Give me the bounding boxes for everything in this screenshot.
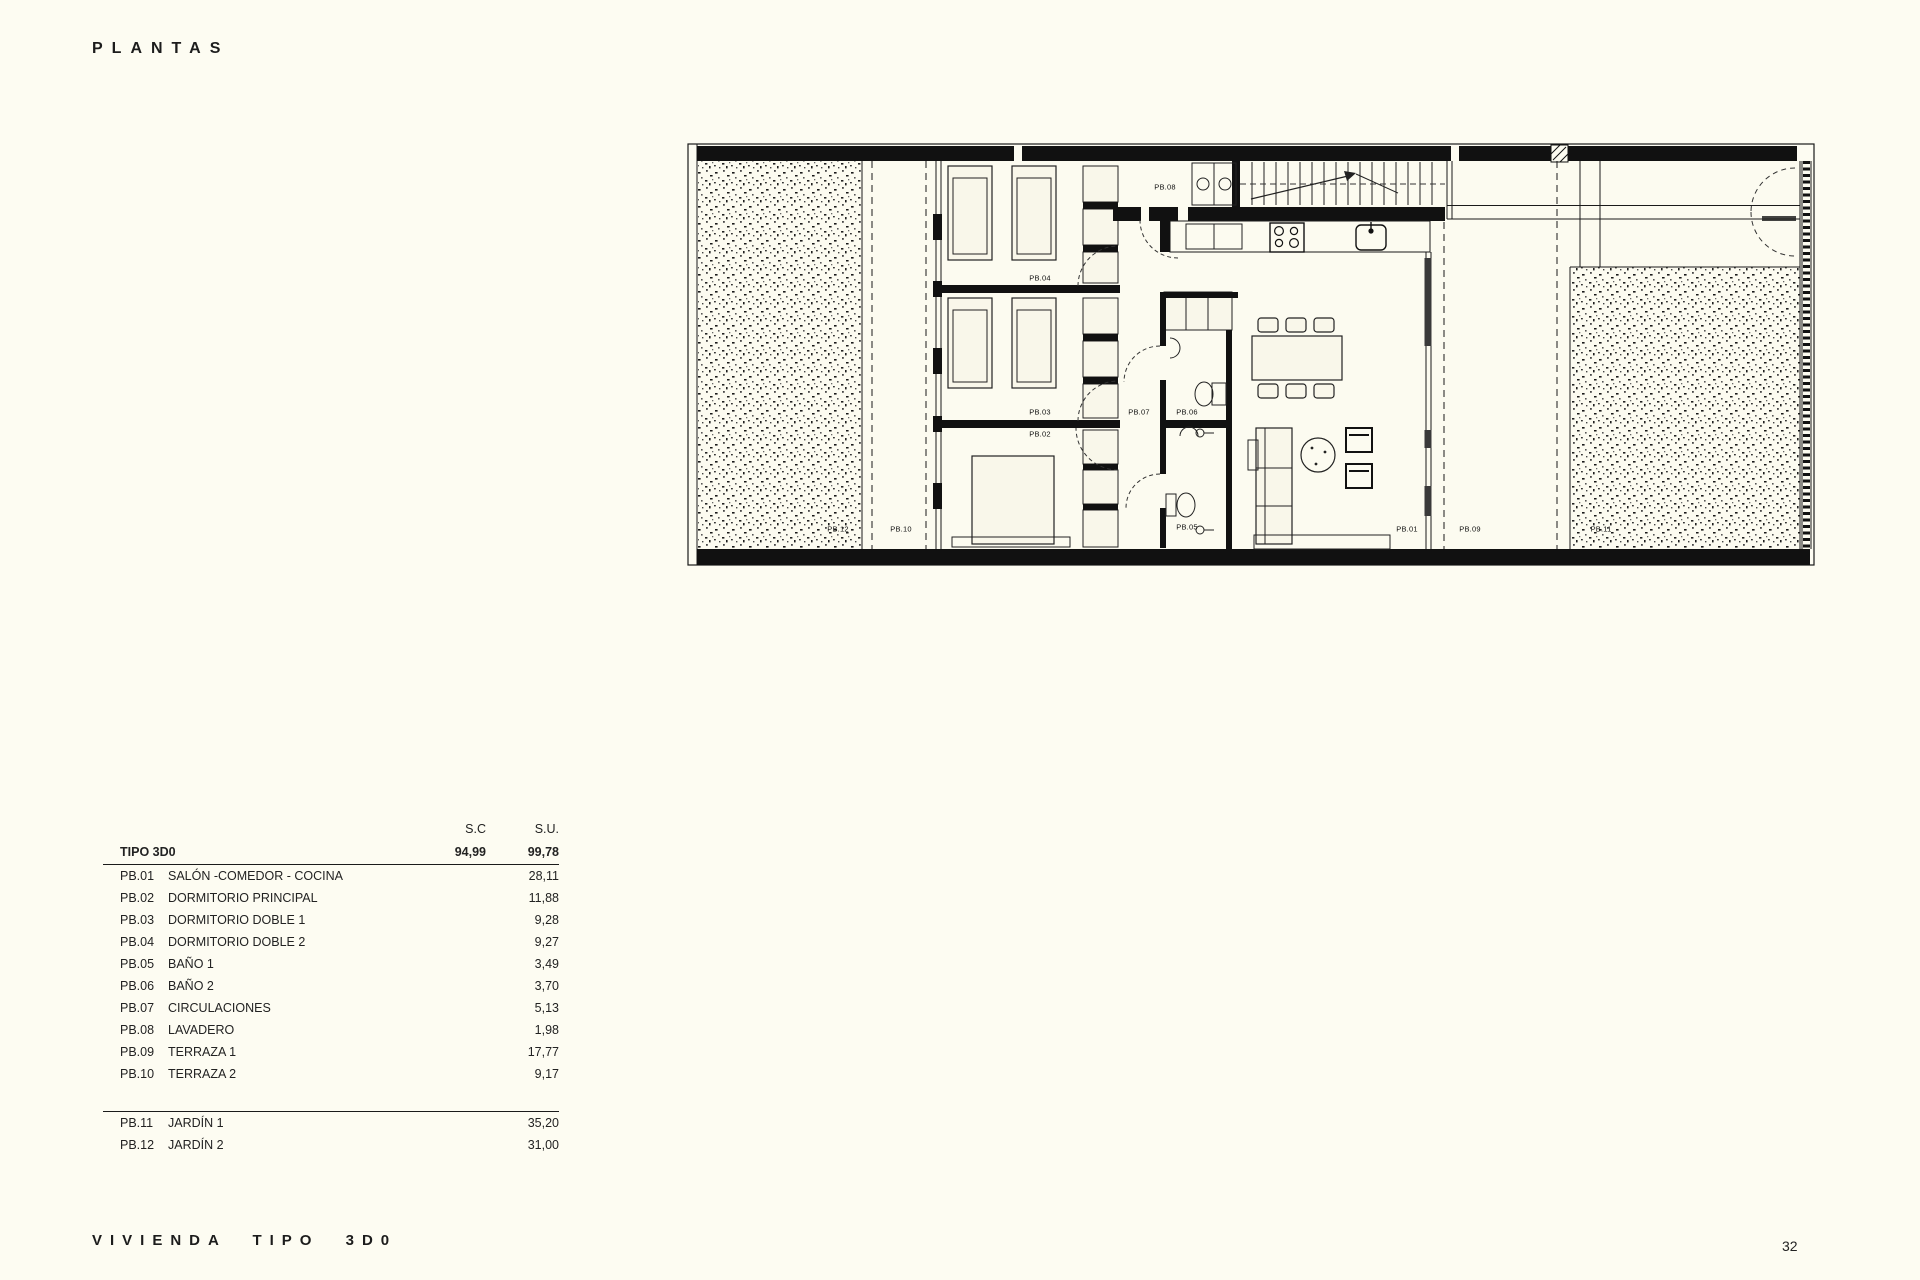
table-total-row: TIPO 3D0 94,99 99,78 bbox=[103, 840, 559, 865]
room-name: JARDÍN 1 bbox=[168, 1112, 363, 1135]
table-rows-exterior: PB.11 JARDÍN 1 35,20 PB.12 JARDÍN 2 31,0… bbox=[103, 1112, 559, 1157]
room-su: 9,27 bbox=[486, 931, 559, 953]
room-code: PB.02 bbox=[103, 887, 168, 909]
table-row: PB.03 DORMITORIO DOBLE 1 9,28 bbox=[103, 909, 559, 931]
room-code: PB.01 bbox=[103, 865, 168, 888]
room-code: PB.03 bbox=[103, 909, 168, 931]
room-sc bbox=[363, 1063, 486, 1085]
room-name: LAVADERO bbox=[168, 1019, 363, 1041]
room-sc bbox=[363, 909, 486, 931]
table-row: PB.07 CIRCULACIONES 5,13 bbox=[103, 997, 559, 1019]
table-row: PB.05 BAÑO 1 3,49 bbox=[103, 953, 559, 975]
room-name: BAÑO 1 bbox=[168, 953, 363, 975]
room-su: 5,13 bbox=[486, 997, 559, 1019]
header-sc: S.C bbox=[363, 818, 486, 840]
header-su: S.U. bbox=[486, 818, 559, 840]
room-su: 3,70 bbox=[486, 975, 559, 997]
room-code: PB.10 bbox=[103, 1063, 168, 1085]
table-rows-interior: PB.01 SALÓN -COMEDOR - COCINA 28,11 PB.0… bbox=[103, 865, 559, 1086]
table-row: PB.08 LAVADERO 1,98 bbox=[103, 1019, 559, 1041]
room-su: 3,49 bbox=[486, 953, 559, 975]
room-name: BAÑO 2 bbox=[168, 975, 363, 997]
brochure-page: { "page": { "title": "PLANTAS", "footer"… bbox=[0, 0, 1920, 1280]
room-su: 9,17 bbox=[486, 1063, 559, 1085]
floor-plan-drawing bbox=[680, 135, 1825, 575]
table-row: PB.04 DORMITORIO DOBLE 2 9,27 bbox=[103, 931, 559, 953]
room-code: PB.06 bbox=[103, 975, 168, 997]
room-name: TERRAZA 2 bbox=[168, 1063, 363, 1085]
table-row: PB.06 BAÑO 2 3,70 bbox=[103, 975, 559, 997]
room-sc bbox=[363, 1134, 486, 1156]
room-name: TERRAZA 1 bbox=[168, 1041, 363, 1063]
table-separator bbox=[103, 1085, 559, 1112]
room-su: 31,00 bbox=[486, 1134, 559, 1156]
room-su: 9,28 bbox=[486, 909, 559, 931]
room-su: 28,11 bbox=[486, 865, 559, 888]
room-sc bbox=[363, 975, 486, 997]
room-sc bbox=[363, 865, 486, 888]
room-su: 17,77 bbox=[486, 1041, 559, 1063]
floor-plan: PB.08PB.04PB.03PB.02PB.07PB.06PB.05PB.12… bbox=[0, 0, 1920, 700]
page-number: 32 bbox=[1782, 1238, 1798, 1254]
footer-title: VIVIENDA TIPO 3D0 bbox=[92, 1232, 397, 1249]
room-name: DORMITORIO DOBLE 1 bbox=[168, 909, 363, 931]
table-row: PB.11 JARDÍN 1 35,20 bbox=[103, 1112, 559, 1135]
room-code: PB.11 bbox=[103, 1112, 168, 1135]
total-sc: 94,99 bbox=[363, 840, 486, 865]
room-sc bbox=[363, 953, 486, 975]
room-code: PB.04 bbox=[103, 931, 168, 953]
room-name: SALÓN -COMEDOR - COCINA bbox=[168, 865, 363, 888]
room-code: PB.09 bbox=[103, 1041, 168, 1063]
table-header-row: S.C S.U. bbox=[103, 818, 559, 840]
table-row: PB.01 SALÓN -COMEDOR - COCINA 28,11 bbox=[103, 865, 559, 888]
room-code: PB.12 bbox=[103, 1134, 168, 1156]
room-su: 35,20 bbox=[486, 1112, 559, 1135]
room-sc bbox=[363, 931, 486, 953]
area-table: S.C S.U. TIPO 3D0 94,99 99,78 PB.01 SALÓ… bbox=[103, 818, 559, 1156]
room-sc bbox=[363, 1041, 486, 1063]
room-name: JARDÍN 2 bbox=[168, 1134, 363, 1156]
room-sc bbox=[363, 1019, 486, 1041]
total-label: TIPO 3D0 bbox=[103, 840, 363, 865]
room-code: PB.08 bbox=[103, 1019, 168, 1041]
room-su: 1,98 bbox=[486, 1019, 559, 1041]
room-sc bbox=[363, 997, 486, 1019]
room-name: DORMITORIO DOBLE 2 bbox=[168, 931, 363, 953]
room-name: CIRCULACIONES bbox=[168, 997, 363, 1019]
room-code: PB.07 bbox=[103, 997, 168, 1019]
table-row: PB.09 TERRAZA 1 17,77 bbox=[103, 1041, 559, 1063]
total-su: 99,78 bbox=[486, 840, 559, 865]
room-sc bbox=[363, 887, 486, 909]
room-name: DORMITORIO PRINCIPAL bbox=[168, 887, 363, 909]
room-sc bbox=[363, 1112, 486, 1135]
room-code: PB.05 bbox=[103, 953, 168, 975]
table-row: PB.02 DORMITORIO PRINCIPAL 11,88 bbox=[103, 887, 559, 909]
room-su: 11,88 bbox=[486, 887, 559, 909]
table-row: PB.12 JARDÍN 2 31,00 bbox=[103, 1134, 559, 1156]
table-row: PB.10 TERRAZA 2 9,17 bbox=[103, 1063, 559, 1085]
